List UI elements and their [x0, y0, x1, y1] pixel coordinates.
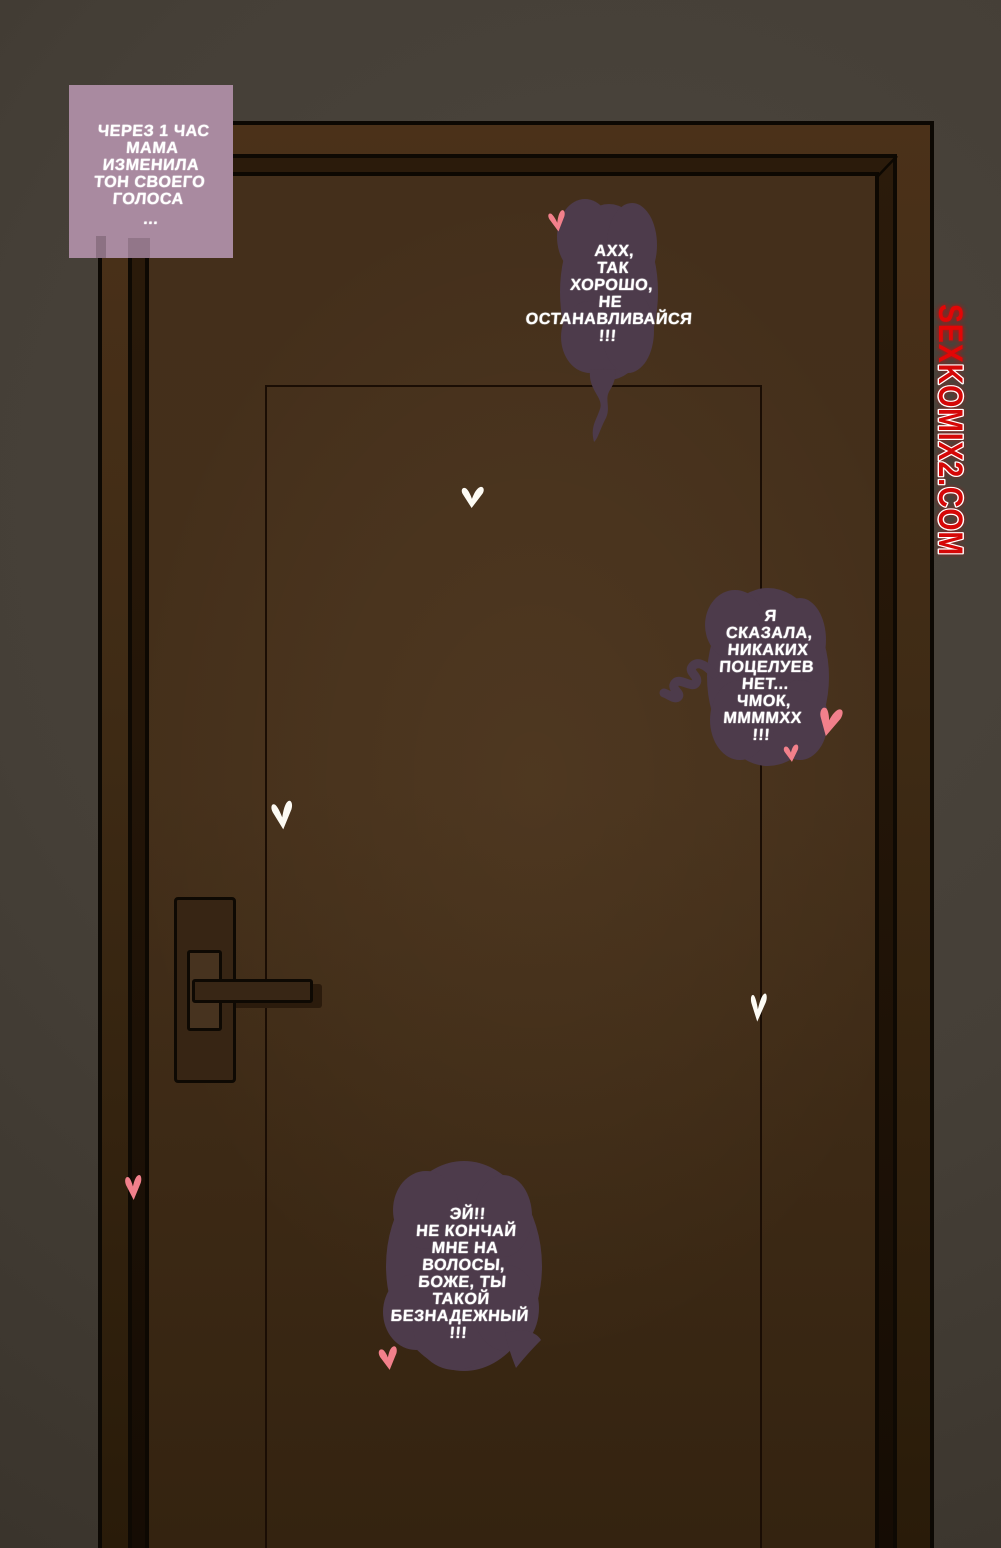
- svg-text:SEXKOMIX2.COM: SEXKOMIX2.COM: [931, 304, 969, 556]
